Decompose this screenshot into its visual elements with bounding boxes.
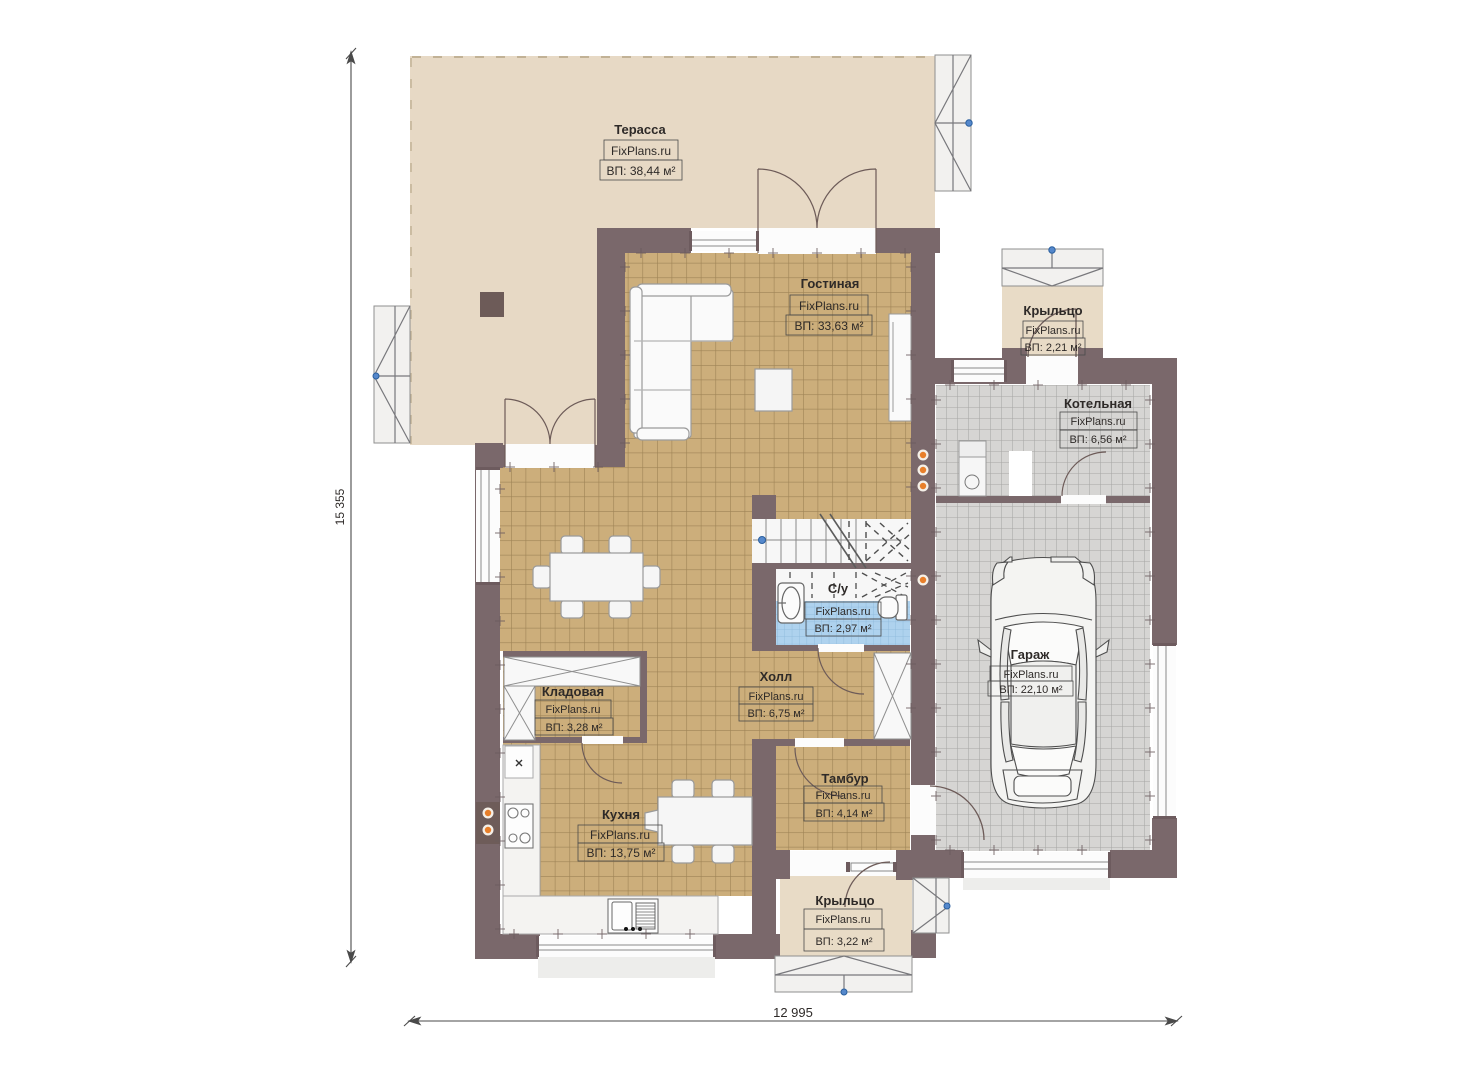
svg-text:ВП: 33,63 м²: ВП: 33,63 м²: [795, 319, 864, 333]
svg-text:FixPlans.ru: FixPlans.ru: [1070, 416, 1125, 428]
svg-text:Кухня: Кухня: [602, 807, 640, 822]
svg-text:12 995: 12 995: [773, 1005, 813, 1020]
svg-text:FixPlans.ru: FixPlans.ru: [815, 914, 870, 926]
svg-text:С/у: С/у: [828, 581, 849, 596]
svg-text:Гостиная: Гостиная: [801, 276, 860, 291]
svg-text:ВП: 22,10 м²: ВП: 22,10 м²: [999, 684, 1063, 696]
svg-text:Терасса: Терасса: [614, 122, 666, 137]
svg-text:ВП: 3,28 м²: ВП: 3,28 м²: [545, 722, 602, 734]
svg-text:ВП: 3,22 м²: ВП: 3,22 м²: [815, 936, 872, 948]
svg-text:FixPlans.ru: FixPlans.ru: [1025, 325, 1080, 337]
svg-text:Тамбур: Тамбур: [821, 771, 868, 786]
svg-text:FixPlans.ru: FixPlans.ru: [815, 790, 870, 802]
svg-text:ВП: 2,21 м²: ВП: 2,21 м²: [1024, 342, 1081, 354]
svg-text:ВП: 13,75 м²: ВП: 13,75 м²: [587, 846, 656, 860]
svg-text:15 355: 15 355: [333, 488, 347, 525]
svg-text:FixPlans.ru: FixPlans.ru: [748, 691, 803, 703]
svg-text:ВП: 6,75 м²: ВП: 6,75 м²: [747, 708, 804, 720]
svg-text:ВП: 38,44 м²: ВП: 38,44 м²: [607, 164, 676, 178]
svg-text:FixPlans.ru: FixPlans.ru: [799, 299, 859, 313]
svg-text:Крыльцо: Крыльцо: [1023, 303, 1082, 318]
svg-text:FixPlans.ru: FixPlans.ru: [611, 144, 671, 158]
svg-text:ВП: 2,97 м²: ВП: 2,97 м²: [814, 623, 871, 635]
svg-text:Холл: Холл: [760, 669, 793, 684]
svg-text:Котельная: Котельная: [1064, 396, 1132, 411]
svg-text:FixPlans.ru: FixPlans.ru: [815, 606, 870, 618]
svg-text:Гараж: Гараж: [1011, 647, 1051, 662]
svg-text:Кладовая: Кладовая: [542, 684, 604, 699]
svg-text:ВП: 4,14 м²: ВП: 4,14 м²: [815, 808, 872, 820]
svg-text:FixPlans.ru: FixPlans.ru: [1003, 669, 1058, 681]
svg-text:FixPlans.ru: FixPlans.ru: [590, 828, 650, 842]
svg-text:ВП: 6,56 м²: ВП: 6,56 м²: [1069, 434, 1126, 446]
svg-text:Крыльцо: Крыльцо: [815, 893, 874, 908]
svg-text:FixPlans.ru: FixPlans.ru: [545, 704, 600, 716]
